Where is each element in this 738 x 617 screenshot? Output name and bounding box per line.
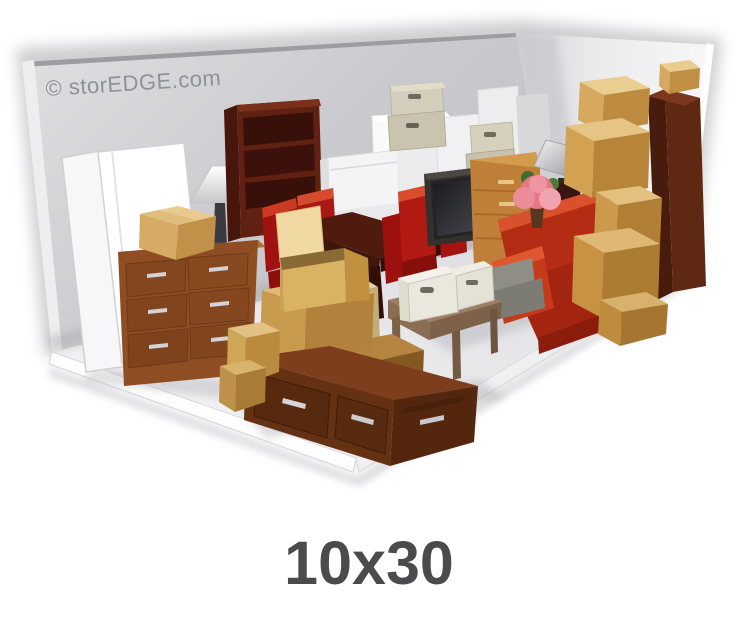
storage-unit-card: © storEDGE.com xyxy=(0,0,738,617)
storage-unit-illustration: © storEDGE.com xyxy=(0,0,738,617)
box-on-wardrobe xyxy=(659,60,700,94)
unit-size-label: 10x30 xyxy=(0,528,738,598)
